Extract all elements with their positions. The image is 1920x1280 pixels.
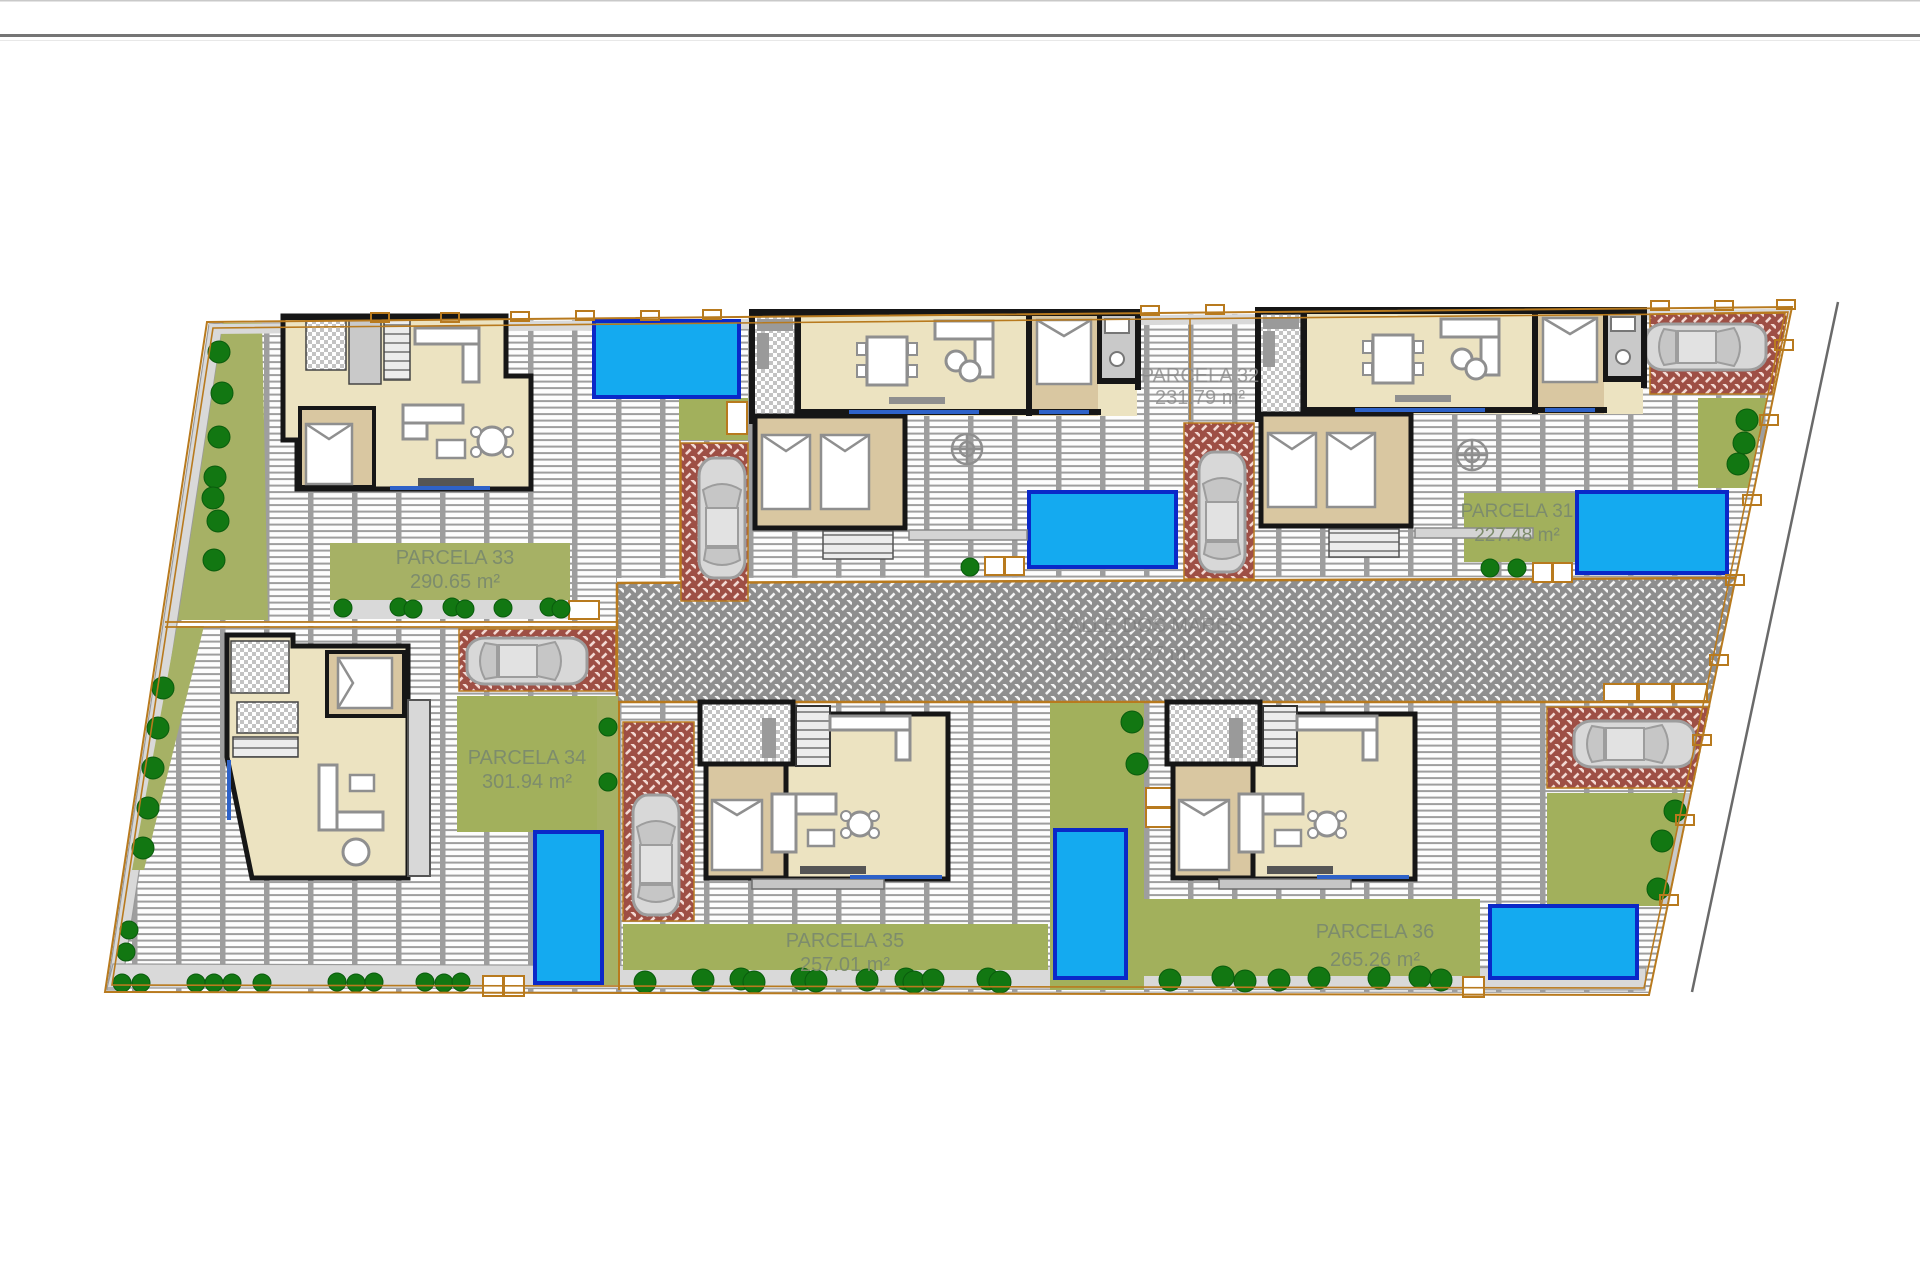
svg-text:CALLE DOS MARES: CALLE DOS MARES [1054,615,1243,637]
svg-text:PARCELA 36: PARCELA 36 [1316,921,1435,943]
svg-text:PARCELA 31: PARCELA 31 [1461,501,1574,522]
svg-text:PARCELA 32: PARCELA 32 [1141,365,1260,387]
svg-text:227.27 m²: 227.27 m² [1103,643,1193,665]
svg-text:265.26 m²: 265.26 m² [1330,949,1420,971]
svg-text:PARCELA 35: PARCELA 35 [786,930,905,952]
svg-text:257.01 m²: 257.01 m² [800,954,890,976]
svg-text:290.65 m²: 290.65 m² [410,571,500,593]
svg-text:PARCELA 34: PARCELA 34 [468,747,587,769]
svg-text:301.94 m²: 301.94 m² [482,771,572,793]
svg-text:227.48 m²: 227.48 m² [1474,525,1560,546]
svg-text:231.79 m²: 231.79 m² [1155,387,1245,409]
svg-text:PARCELA 33: PARCELA 33 [396,547,515,569]
